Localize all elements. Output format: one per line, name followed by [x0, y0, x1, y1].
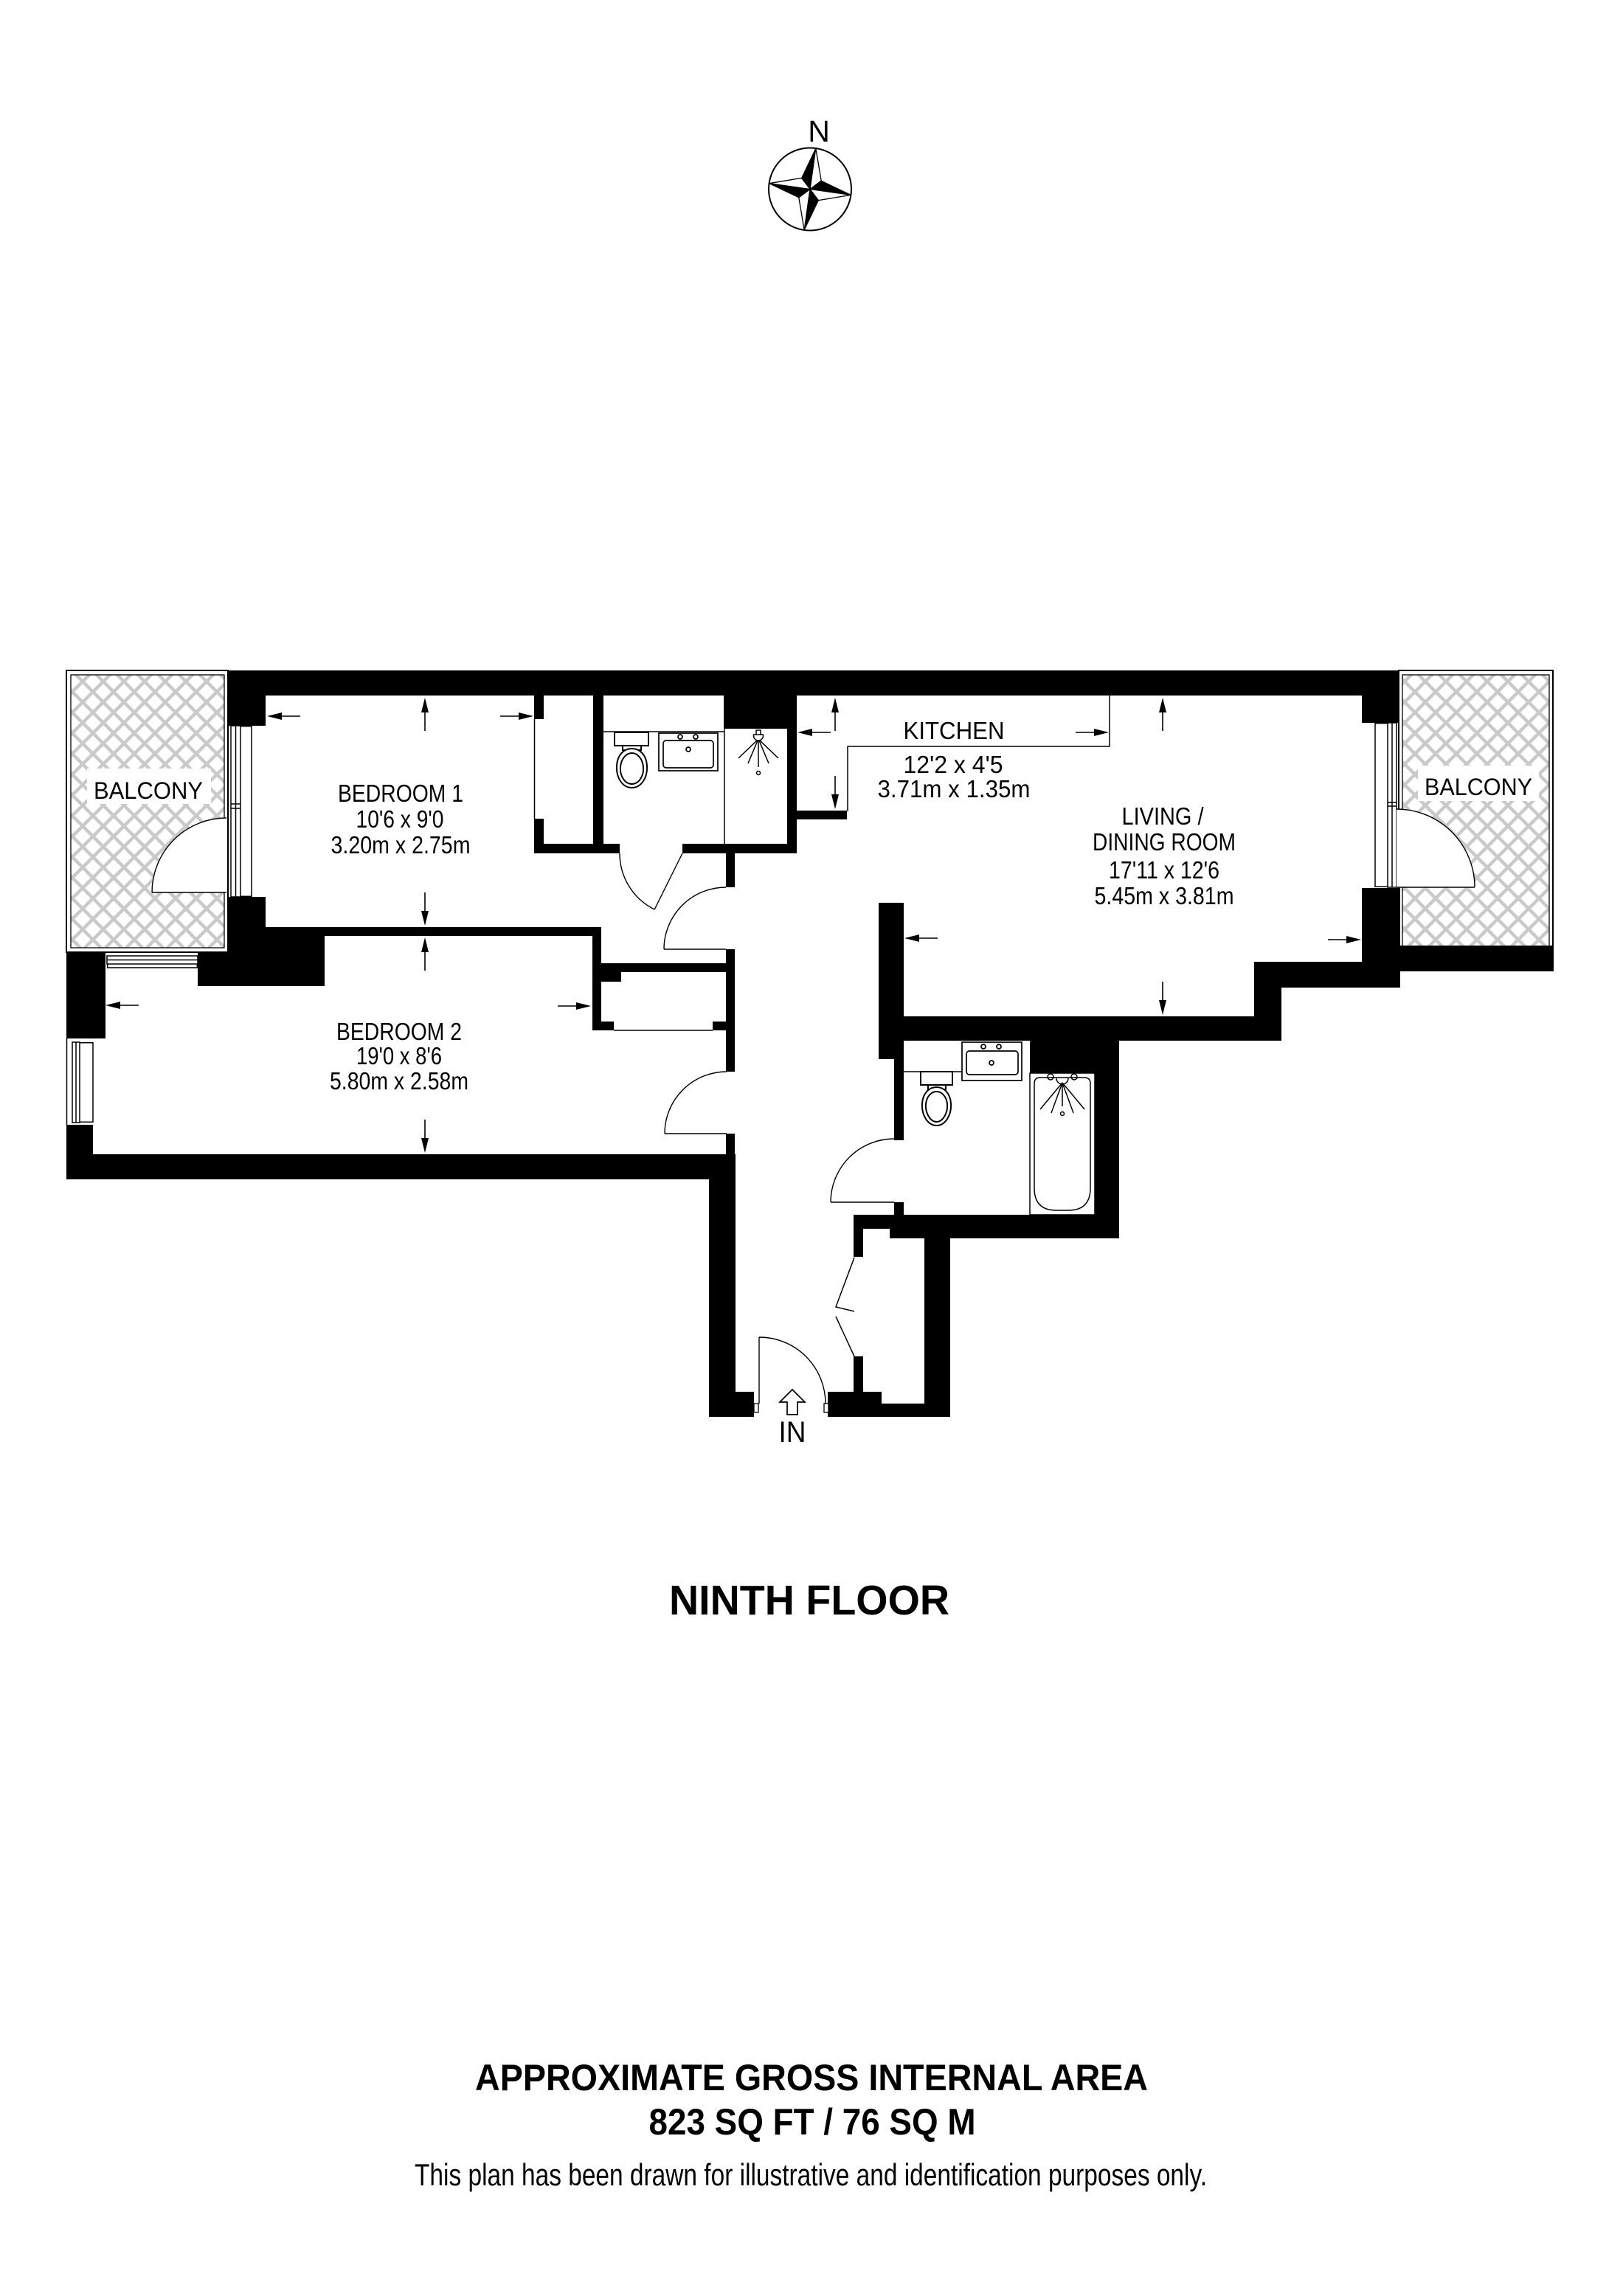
- svg-text:BEDROOM 2: BEDROOM 2: [336, 1019, 462, 1046]
- svg-text:APPROXIMATE GROSS INTERNAL ARE: APPROXIMATE GROSS INTERNAL AREA: [475, 2056, 1148, 2098]
- svg-text:This plan has been drawn for i: This plan has been drawn for illustrativ…: [415, 2157, 1207, 2192]
- svg-text:DINING ROOM: DINING ROOM: [1093, 829, 1236, 856]
- svg-text:3.71m x 1.35m: 3.71m x 1.35m: [878, 776, 1031, 803]
- svg-text:BALCONY: BALCONY: [94, 777, 203, 804]
- svg-text:10'6 x 9'0: 10'6 x 9'0: [356, 806, 444, 833]
- svg-text:5.80m x 2.58m: 5.80m x 2.58m: [330, 1068, 468, 1095]
- svg-text:BEDROOM 1: BEDROOM 1: [338, 780, 463, 808]
- svg-text:N: N: [808, 114, 830, 148]
- svg-text:17'11 x 12'6: 17'11 x 12'6: [1109, 857, 1219, 884]
- svg-text:823 SQ FT / 76 SQ M: 823 SQ FT / 76 SQ M: [649, 2101, 976, 2143]
- svg-text:5.45m x 3.81m: 5.45m x 3.81m: [1095, 883, 1234, 910]
- svg-text:IN: IN: [779, 1416, 806, 1449]
- svg-text:NINTH FLOOR: NINTH FLOOR: [669, 1577, 949, 1624]
- svg-text:3.20m x 2.75m: 3.20m x 2.75m: [331, 832, 471, 859]
- svg-text:KITCHEN: KITCHEN: [904, 718, 1005, 745]
- svg-text:12'2 x 4'5: 12'2 x 4'5: [904, 752, 1003, 779]
- svg-text:LIVING /: LIVING /: [1122, 803, 1205, 830]
- svg-text:BALCONY: BALCONY: [1425, 774, 1532, 800]
- svg-text:19'0 x 8'6: 19'0 x 8'6: [356, 1043, 442, 1070]
